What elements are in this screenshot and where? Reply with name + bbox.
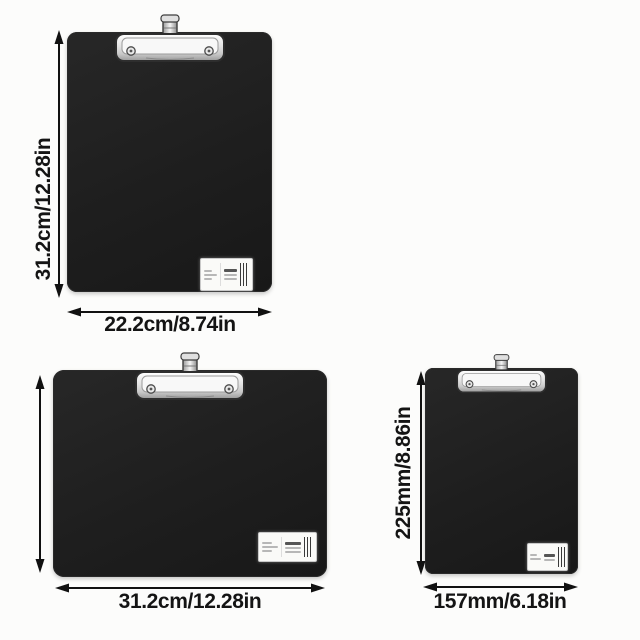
clipboard-board xyxy=(67,32,272,292)
width-dimension-label: 22.2cm/8.74in xyxy=(104,313,235,337)
product-dimension-diagram: 31.2cm/12.28in 22.2cm/8.74in xyxy=(0,0,640,640)
clipboard-clip-icon xyxy=(455,353,548,394)
label-text-lines xyxy=(262,537,278,557)
height-dimension-label: 31.2cm/12.28in xyxy=(32,138,56,281)
clipboard-clip-icon xyxy=(114,13,226,63)
label-text-lines xyxy=(285,537,301,557)
height-dimension-label: 225mm/8.86in xyxy=(392,407,416,540)
width-dimension-label: 31.2cm/12.28in xyxy=(119,590,262,614)
label-text-lines xyxy=(224,263,237,286)
height-dimension-arrow xyxy=(415,371,427,575)
height-dimension-arrow xyxy=(34,375,46,573)
label-text-lines xyxy=(544,547,555,567)
width-dimension-label: 157mm/6.18in xyxy=(434,590,567,614)
label-text-lines xyxy=(204,263,217,286)
barcode-icon xyxy=(304,537,313,557)
barcode-icon xyxy=(240,263,249,286)
clipboard-clip-icon xyxy=(134,351,246,401)
label-sticker xyxy=(200,258,253,291)
barcode-icon xyxy=(558,547,565,567)
label-sticker xyxy=(527,543,568,571)
label-text-lines xyxy=(530,547,541,567)
label-sticker xyxy=(258,532,317,562)
